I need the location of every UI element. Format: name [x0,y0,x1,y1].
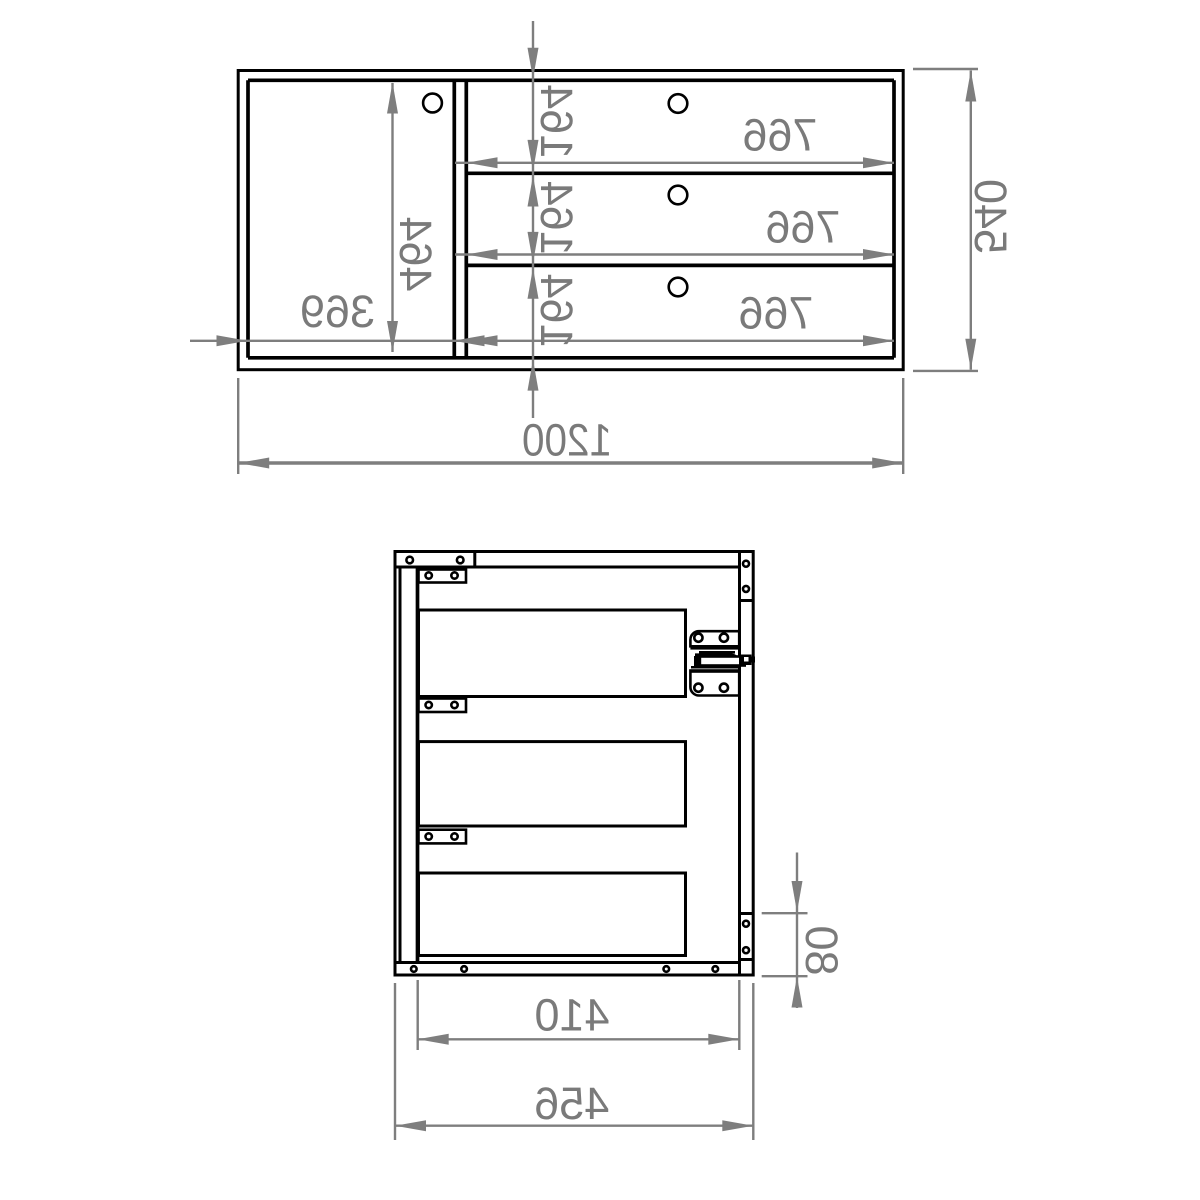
svg-text:1200: 1200 [522,415,612,466]
svg-text:766: 766 [765,201,840,252]
svg-text:164: 164 [531,181,582,256]
svg-text:164: 164 [531,84,582,159]
svg-text:80: 80 [796,925,847,975]
svg-text:540: 540 [965,179,1016,254]
svg-text:369: 369 [300,286,375,337]
svg-text:164: 164 [531,273,582,348]
svg-text:410: 410 [534,990,609,1041]
svg-text:766: 766 [738,288,813,339]
svg-text:766: 766 [742,110,817,161]
svg-text:456: 456 [534,1078,609,1129]
svg-text:464: 464 [390,216,441,291]
